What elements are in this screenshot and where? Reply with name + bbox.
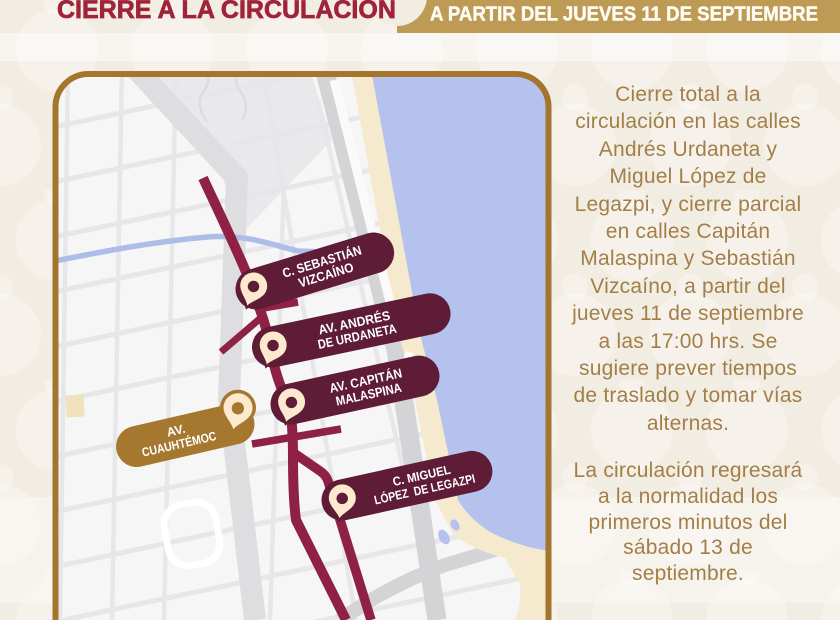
svg-text:La circulación regresará: La circulación regresará: [574, 459, 803, 482]
svg-text:Cierre total a la: Cierre total a la: [615, 83, 761, 106]
svg-text:Miguel López de: Miguel López de: [609, 165, 766, 188]
svg-text:CIERRE A LA CIRCULACIÓN: CIERRE A LA CIRCULACIÓN: [57, 0, 396, 24]
svg-text:sábado 13 de: sábado 13 de: [623, 536, 753, 559]
svg-text:circulación en las calles: circulación en las calles: [575, 110, 801, 133]
svg-text:Vizcaíno, a partir del: Vizcaíno, a partir del: [590, 275, 785, 298]
svg-text:A PARTIR DEL JUEVES 11 DE SEPT: A PARTIR DEL JUEVES 11 DE SEPTIEMBRE: [430, 3, 818, 26]
svg-text:a las 17:00 hrs. Se: a las 17:00 hrs. Se: [599, 330, 778, 353]
svg-text:Malaspina y Sebastián: Malaspina y Sebastián: [580, 247, 796, 270]
svg-text:en calles Capitán: en calles Capitán: [606, 220, 771, 243]
svg-text:sugiere prever tiempos: sugiere prever tiempos: [579, 357, 797, 380]
svg-text:Andrés Urdaneta y: Andrés Urdaneta y: [599, 138, 778, 161]
svg-text:a la normalidad los: a la normalidad los: [598, 485, 778, 508]
svg-text:alternas.: alternas.: [647, 412, 729, 435]
svg-text:Legazpi, y cierre parcial: Legazpi, y cierre parcial: [575, 193, 802, 216]
svg-text:septiembre.: septiembre.: [632, 562, 744, 585]
svg-text:jueves 11 de septiembre: jueves 11 de septiembre: [571, 302, 804, 325]
svg-text:de traslado y tomar vías: de traslado y tomar vías: [574, 384, 803, 407]
svg-text:primeros minutos del: primeros minutos del: [589, 511, 788, 534]
